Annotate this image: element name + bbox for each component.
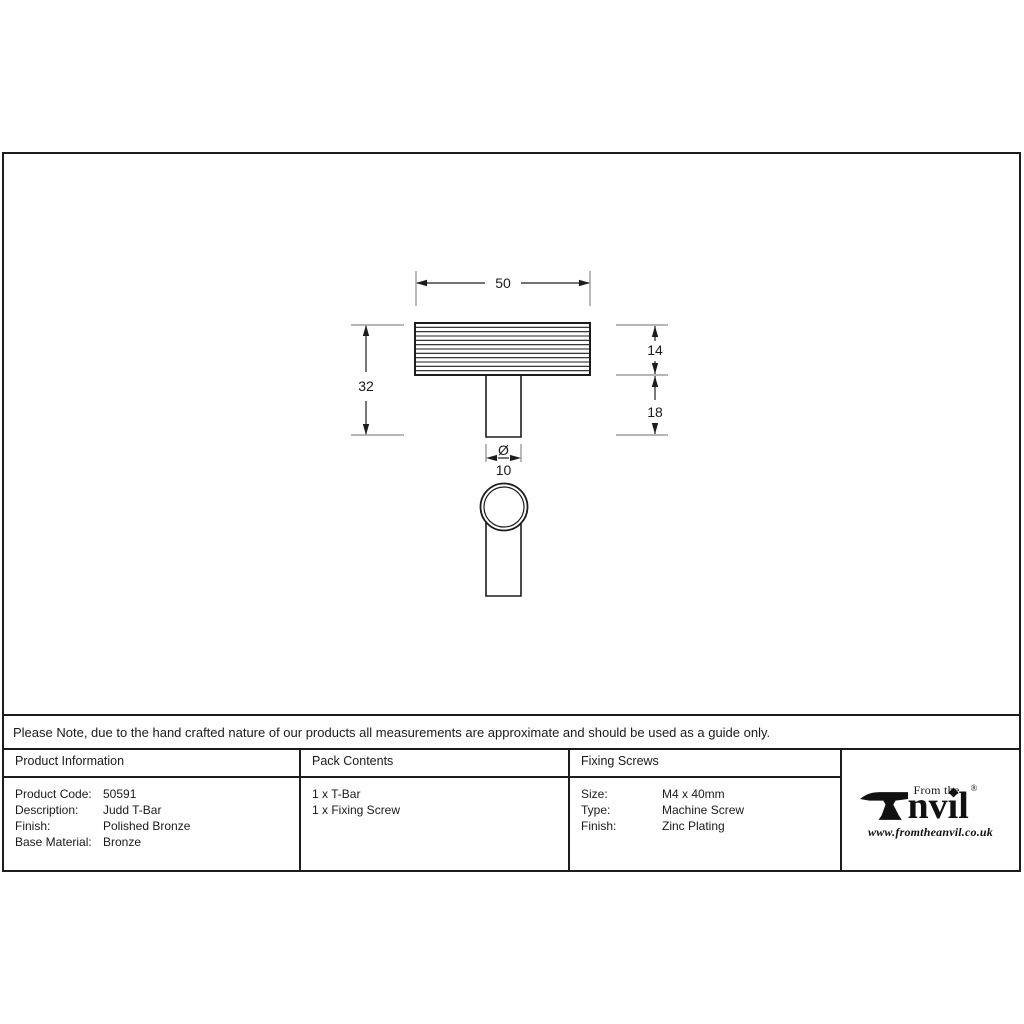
dim-stem-height: 18 [647, 404, 663, 420]
dim-bar-width: 50 [495, 275, 511, 291]
table-row: Product Code:50591 [15, 786, 299, 802]
base-material-label: Base Material: [15, 834, 103, 850]
screw-type-label: Type: [581, 802, 662, 818]
dim-stem-diameter: 10 [496, 462, 512, 478]
table-row: Finish:Polished Bronze [15, 818, 299, 834]
screw-size-label: Size: [581, 786, 662, 802]
dim-diameter-symbol: Ø [498, 442, 509, 458]
note-row: Please Note, due to the hand crafted nat… [4, 714, 1019, 748]
table-row: Size:M4 x 40mm [581, 786, 840, 802]
screw-finish-label: Finish: [581, 818, 662, 834]
spec-table: Product Information Product Code:50591 D… [4, 748, 1019, 870]
product-code-label: Product Code: [15, 786, 103, 802]
front-view [415, 323, 590, 437]
table-row: Type:Machine Screw [581, 802, 840, 818]
pack-contents-header: Pack Contents [301, 750, 568, 778]
pack-item: 1 x T-Bar [312, 786, 568, 802]
base-material-value: Bronze [103, 835, 141, 849]
dim-overall-height: 32 [358, 378, 374, 394]
anvil-icon [860, 786, 908, 826]
fixing-screws-column: Fixing Screws Size:M4 x 40mm Type:Machin… [570, 750, 842, 870]
pack-item: 1 x Fixing Screw [312, 802, 568, 818]
fixing-screws-header: Fixing Screws [570, 750, 840, 778]
finish-value: Polished Bronze [103, 819, 190, 833]
screw-size-value: M4 x 40mm [662, 787, 725, 801]
description-value: Judd T-Bar [103, 803, 161, 817]
table-row: Base Material:Bronze [15, 834, 299, 850]
screw-finish-value: Zinc Plating [662, 819, 725, 833]
drawing-frame: 50 32 14 18 Ø 10 Please Note, due to the… [2, 152, 1021, 872]
product-information-column: Product Information Product Code:50591 D… [4, 750, 301, 870]
screw-type-value: Machine Screw [662, 803, 744, 817]
description-label: Description: [15, 802, 103, 818]
table-row: Description:Judd T-Bar [15, 802, 299, 818]
finish-label: Finish: [15, 818, 103, 834]
from-the-anvil-logo: From the nvıl ® www.fromtheanvil.co.uk [860, 782, 1002, 838]
pack-contents-column: Pack Contents 1 x T-Bar 1 x Fixing Screw [301, 750, 570, 870]
table-row: Finish:Zinc Plating [581, 818, 840, 834]
end-view [481, 484, 528, 597]
product-code-value: 50591 [103, 787, 136, 801]
logo-brand-rest: nvıl [908, 787, 969, 825]
brand-column: From the nvıl ® www.fromtheanvil.co.uk [842, 750, 1019, 870]
product-information-header: Product Information [4, 750, 299, 778]
note-text: Please Note, due to the hand crafted nat… [13, 725, 770, 740]
registered-trademark-icon: ® [971, 783, 978, 793]
technical-drawing: 50 32 14 18 Ø 10 [4, 154, 1019, 714]
dim-bar-height: 14 [647, 342, 663, 358]
logo-website: www.fromtheanvil.co.uk [860, 825, 1002, 840]
end-view-outer-circle [481, 484, 528, 531]
tbar-stem [486, 376, 521, 437]
